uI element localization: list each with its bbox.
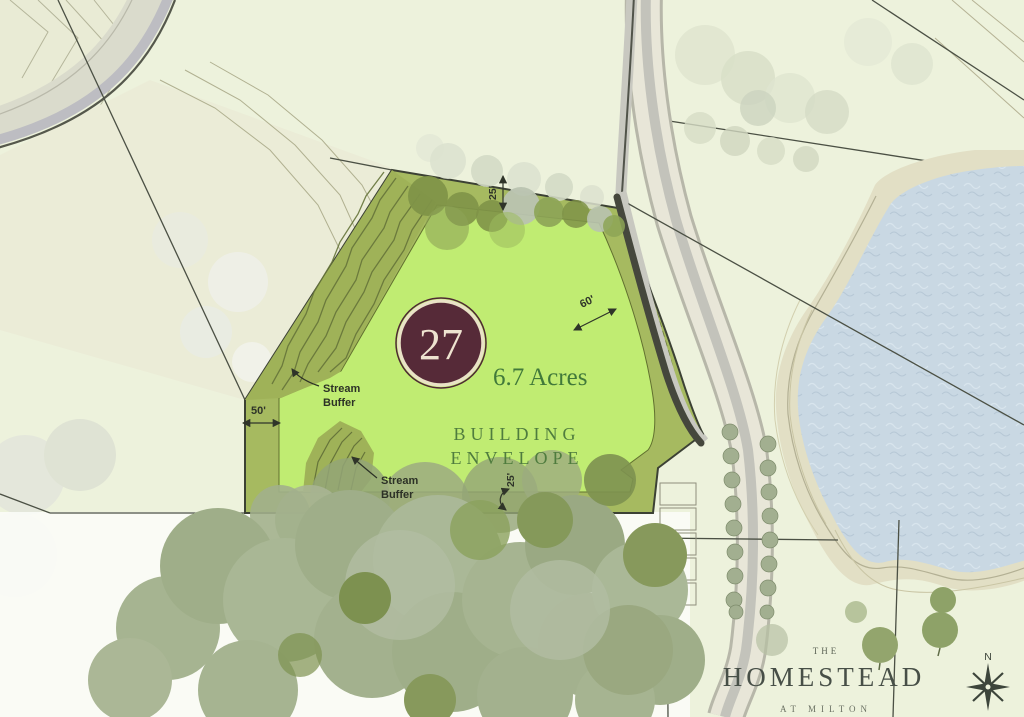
stream-buffer-1-line1: Stream bbox=[323, 383, 361, 395]
stream-buffer-2-line2: Buffer bbox=[381, 489, 414, 501]
dim-top-text: 25' bbox=[487, 186, 499, 200]
logo-suffix: AT MILTON bbox=[780, 704, 872, 714]
site-plan-page: 27 6.7 Acres BUILDING ENVELOPE Stream Bu… bbox=[0, 0, 1024, 717]
lot-number: 27 bbox=[419, 320, 463, 369]
acreage-label: 6.7 Acres bbox=[493, 364, 587, 391]
compass-north-label: N bbox=[984, 651, 992, 663]
site-plan: 27 6.7 Acres BUILDING ENVELOPE Stream Bu… bbox=[0, 0, 1024, 717]
lot-number-badge: 27 bbox=[396, 298, 486, 388]
envelope-label-line2: ENVELOPE bbox=[451, 448, 584, 468]
logo-name: HOMESTEAD bbox=[723, 662, 926, 692]
dim-left-text: 50' bbox=[251, 405, 266, 417]
stream-buffer-2-line1: Stream bbox=[381, 475, 419, 487]
stream-buffer-1-line2: Buffer bbox=[323, 397, 356, 409]
logo-prefix: THE bbox=[813, 646, 840, 656]
dim-bottom-text: 25' bbox=[505, 473, 517, 487]
envelope-label-line1: BUILDING bbox=[454, 424, 581, 444]
